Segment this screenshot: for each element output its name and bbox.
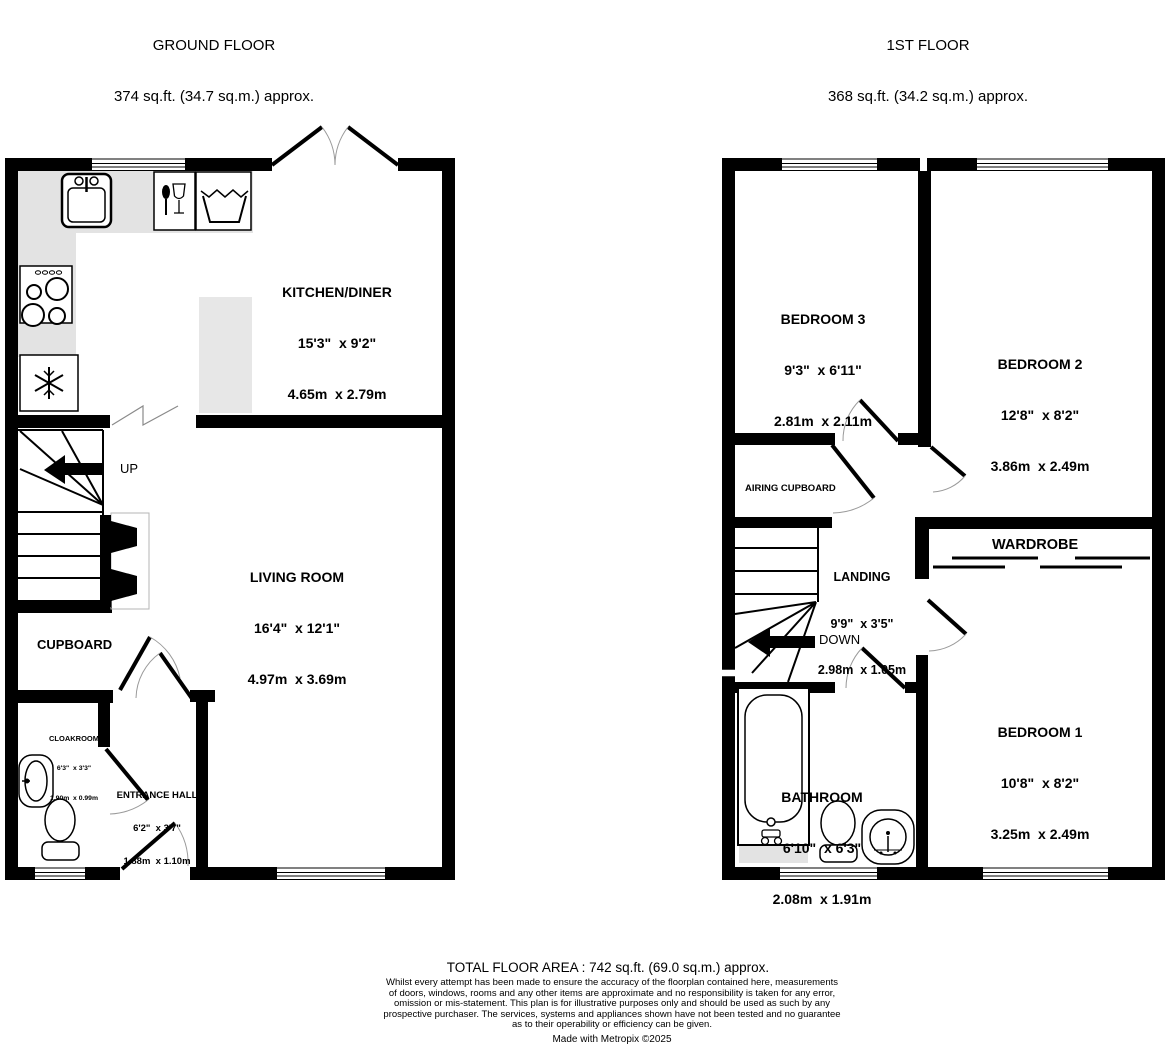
- cupboard-door: [120, 637, 180, 690]
- airing-cupboard-door: [832, 445, 874, 513]
- bedroom1-label: BEDROOM 1 10'8" x 8'2" 3.25m x 2.49m: [991, 690, 1090, 860]
- sink-icon: [62, 174, 111, 227]
- cloakroom-label: CLOAKROOM 6'3" x 3'3" 1.90m x 0.99m: [49, 714, 99, 814]
- disclaimer: Whilst every attempt has been made to en…: [362, 978, 862, 1031]
- bedroom1-door: [928, 600, 966, 651]
- chimney-breast: [100, 513, 149, 609]
- wardrobe-label: WARDROBE: [992, 537, 1078, 553]
- hall-door: [136, 653, 193, 700]
- credit-line: Made with Metropix ©2025: [552, 1034, 671, 1045]
- ground-floor-title: GROUND FLOOR: [114, 37, 314, 54]
- staircase-up: [18, 430, 103, 578]
- ground-floor-header: GROUND FLOOR 374 sq.ft. (34.7 sq.m.) app…: [114, 3, 314, 122]
- cupboard-label: CUPBOARD: [37, 637, 112, 652]
- kitchen-diner-label: KITCHEN/DINER 15'3" x 9'2" 4.65m x 2.79m: [282, 250, 392, 420]
- first-floor-area: 368 sq.ft. (34.2 sq.m.) approx.: [828, 88, 1028, 105]
- floorplan-page: GROUND FLOOR 374 sq.ft. (34.7 sq.m.) app…: [0, 0, 1168, 1048]
- first-floor-header: 1ST FLOOR 368 sq.ft. (34.2 sq.m.) approx…: [828, 3, 1028, 122]
- staircase-down: [735, 528, 818, 682]
- ground-floor-area: 374 sq.ft. (34.7 sq.m.) approx.: [114, 88, 314, 105]
- entrance-hall-label: ENTRANCE HALL 6'2" x 3'7" 1.88m x 1.10m: [117, 768, 198, 878]
- floorplan-graphics: [0, 0, 1168, 1048]
- stairs-down-label: DOWN: [819, 632, 860, 647]
- washing-machine-icon: [196, 172, 251, 230]
- dishwasher-icon: [154, 172, 195, 230]
- airing-cupboard-label: AIRING CUPBOARD: [745, 483, 836, 494]
- bedroom2-label: BEDROOM 2 12'8" x 8'2" 3.86m x 2.49m: [991, 322, 1090, 492]
- hob-icon: [20, 266, 72, 326]
- open-plan-break: [112, 406, 178, 425]
- total-floor-area: TOTAL FLOOR AREA : 742 sq.ft. (69.0 sq.m…: [447, 960, 769, 975]
- bathroom-label: BATHROOM 6'10" x 6'3" 2.08m x 1.91m: [773, 755, 872, 925]
- first-floor-title: 1ST FLOOR: [828, 37, 1028, 54]
- basin-icon: [19, 755, 53, 807]
- bedroom2-door: [931, 447, 965, 492]
- living-room-label: LIVING ROOM 16'4" x 12'1" 4.97m x 3.69m: [248, 535, 347, 705]
- bedroom3-label: BEDROOM 3 9'3" x 6'11" 2.81m x 2.11m: [774, 277, 872, 447]
- landing-label: LANDING 9'9" x 3'5" 2.98m x 1.05m: [818, 539, 906, 694]
- stairs-up-label: UP: [120, 461, 138, 476]
- freezer-icon: [20, 355, 78, 411]
- french-doors: [272, 127, 398, 165]
- wardrobe-sliding-doors: [933, 558, 1150, 567]
